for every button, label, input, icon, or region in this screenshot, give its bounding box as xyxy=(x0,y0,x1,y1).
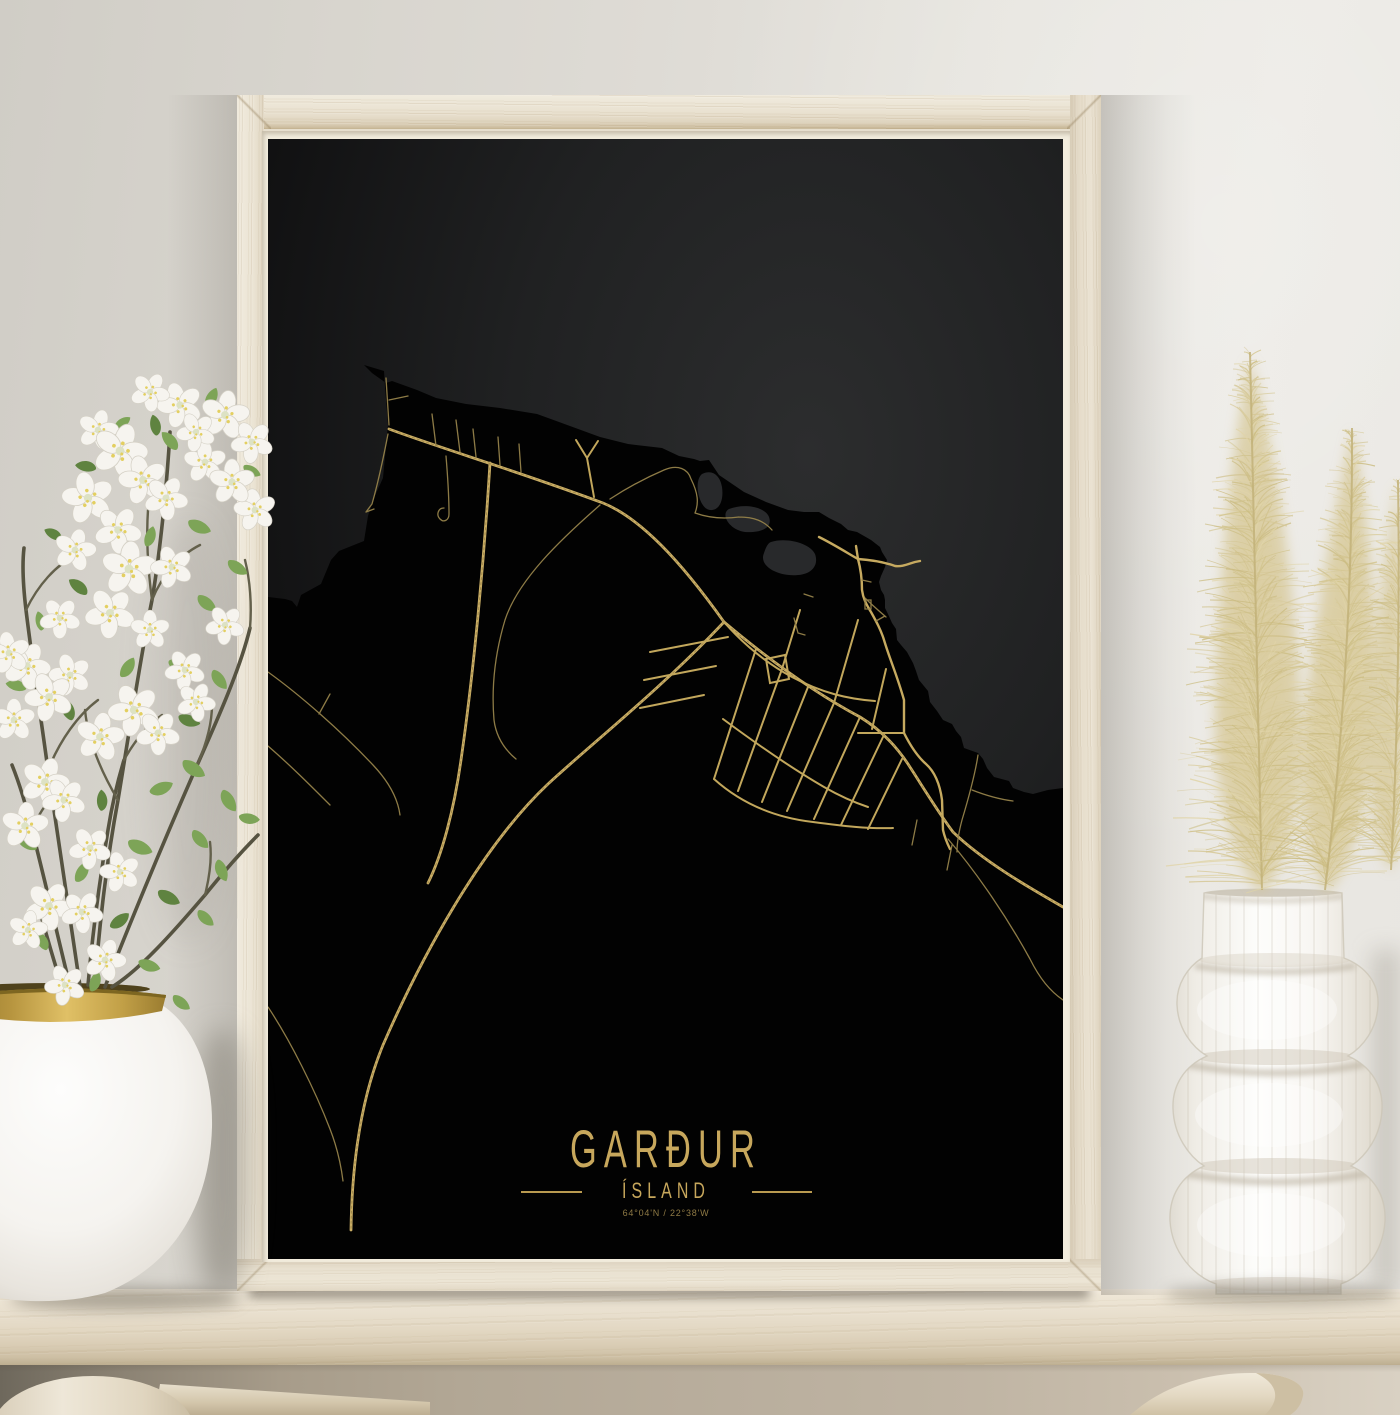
svg-text:ÍSLAND: ÍSLAND xyxy=(622,1178,710,1203)
svg-text:GARÐUR: GARÐUR xyxy=(570,1120,762,1179)
svg-text:64°04'N / 22°38'W: 64°04'N / 22°38'W xyxy=(623,1208,710,1218)
